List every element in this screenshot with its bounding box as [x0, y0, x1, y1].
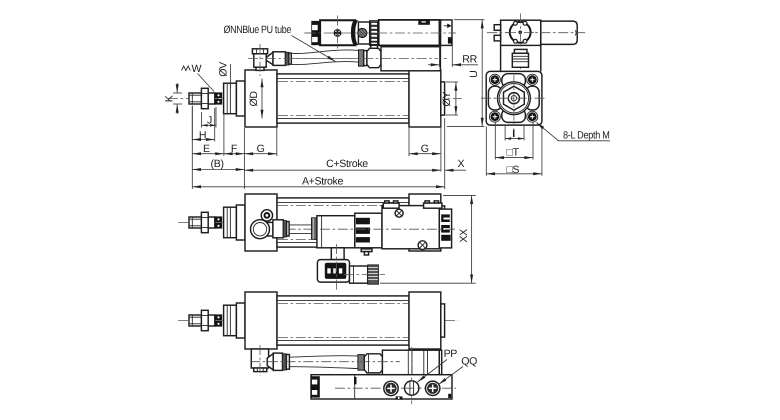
svg-text:G: G — [421, 143, 429, 155]
svg-text:J: J — [207, 114, 212, 126]
svg-text:X: X — [458, 158, 465, 170]
svg-text:ØD: ØD — [248, 91, 260, 107]
svg-text:W: W — [192, 63, 202, 75]
svg-text:F: F — [231, 143, 238, 155]
svg-text:A+Stroke: A+Stroke — [302, 176, 344, 188]
svg-text:K: K — [164, 95, 176, 102]
svg-text:RR: RR — [462, 54, 477, 66]
svg-text:PP: PP — [444, 348, 458, 360]
svg-text:ØNNBlue PU tube: ØNNBlue PU tube — [224, 24, 292, 36]
svg-text:ØY: ØY — [441, 92, 453, 107]
svg-text:QQ: QQ — [461, 356, 477, 368]
svg-text:G: G — [257, 143, 265, 155]
svg-text:I: I — [512, 128, 515, 140]
svg-text:□S: □S — [506, 164, 519, 176]
svg-text:E: E — [203, 143, 210, 155]
svg-text:(B): (B) — [211, 158, 224, 170]
svg-text:C+Stroke: C+Stroke — [326, 158, 368, 170]
svg-text:H: H — [199, 129, 206, 141]
svg-text:8-L Depth M: 8-L Depth M — [563, 130, 610, 142]
svg-text:XX: XX — [458, 229, 470, 243]
svg-text:ØV: ØV — [218, 61, 230, 77]
svg-text:U: U — [468, 71, 480, 78]
svg-text:□T: □T — [507, 147, 520, 159]
